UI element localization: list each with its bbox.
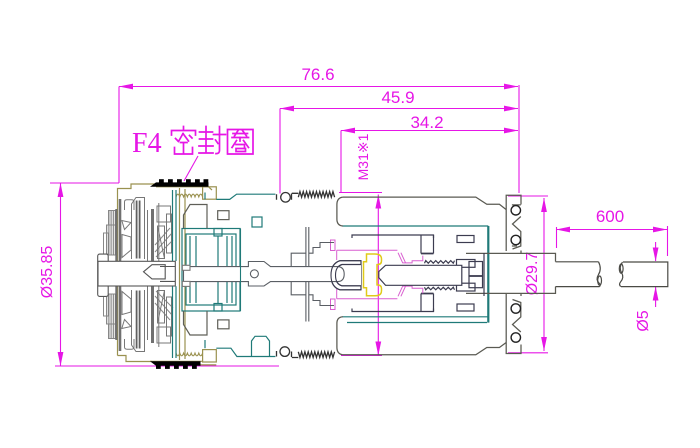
svg-text:Ø5: Ø5 xyxy=(635,310,652,331)
svg-text:M31※1: M31※1 xyxy=(355,133,371,180)
svg-text:600: 600 xyxy=(596,207,624,226)
svg-text:F4: F4 xyxy=(132,128,162,159)
svg-text:76.6: 76.6 xyxy=(301,65,334,84)
svg-text:45.9: 45.9 xyxy=(381,88,414,107)
svg-text:34.2: 34.2 xyxy=(410,113,443,132)
svg-text:Ø35.85: Ø35.85 xyxy=(39,246,56,299)
svg-text:Ø29.7: Ø29.7 xyxy=(524,252,541,296)
